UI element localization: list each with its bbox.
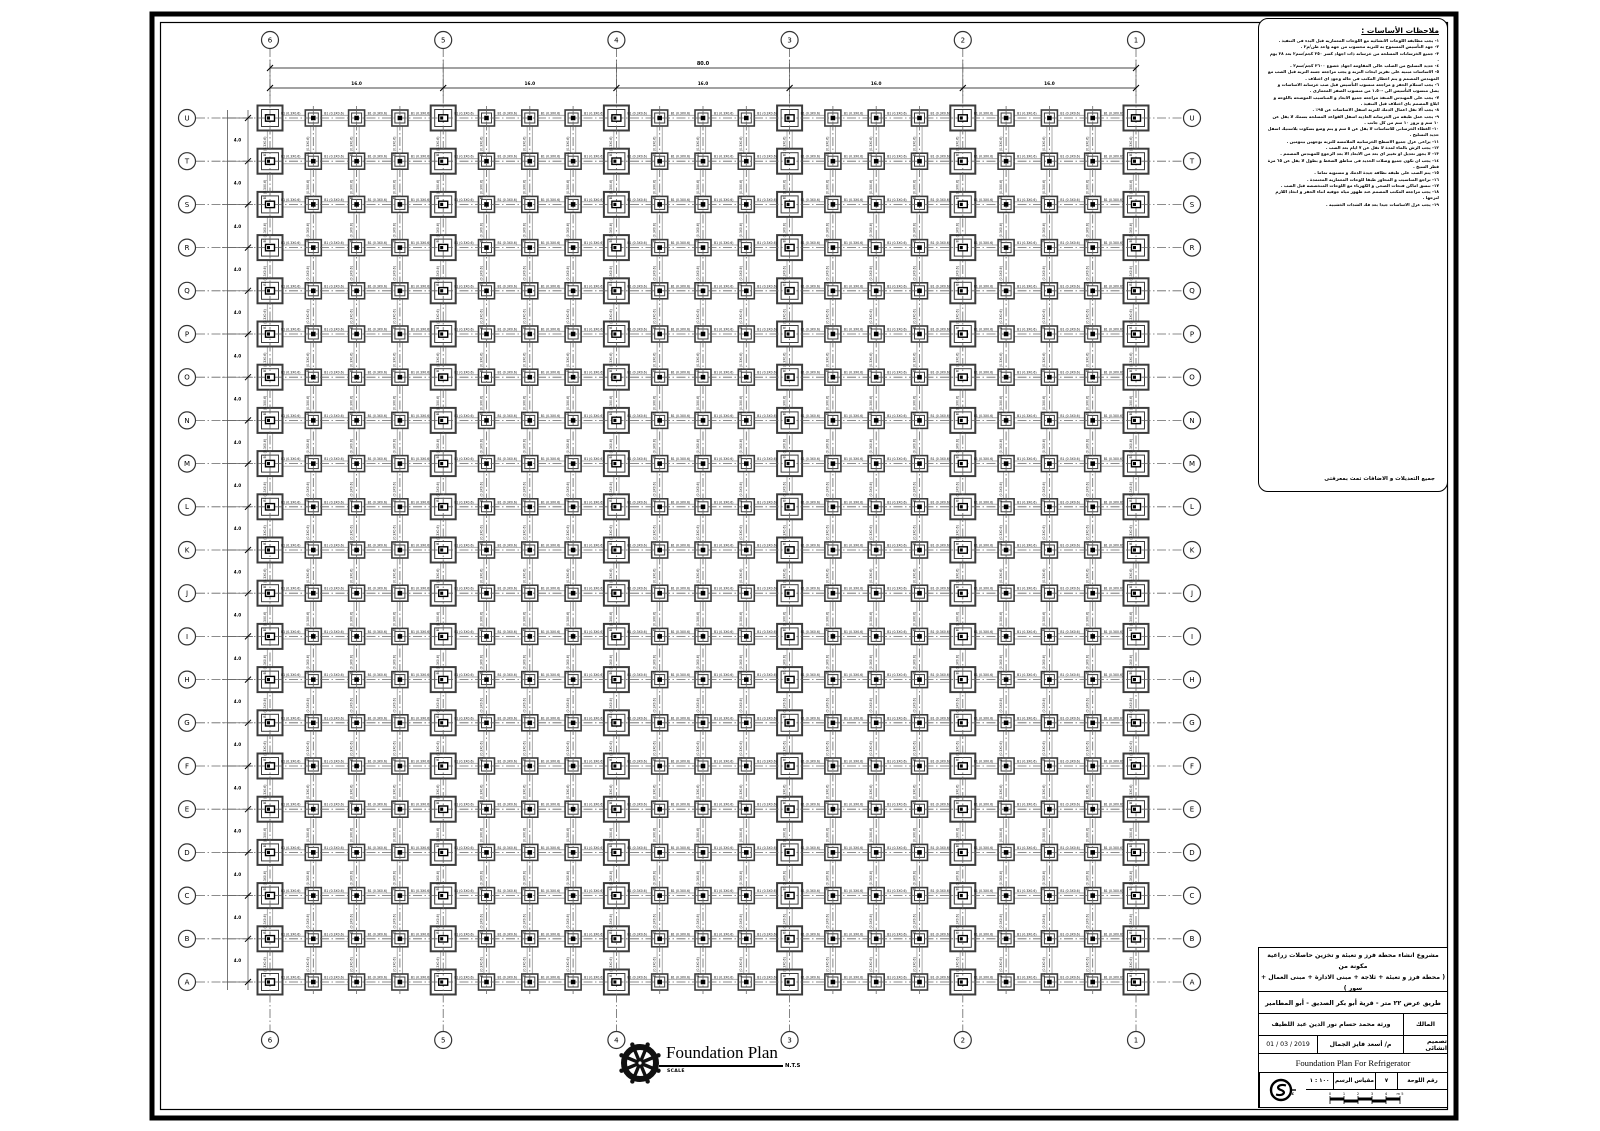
svg-text:B1 (0.3X0.6): B1 (0.3X0.6) <box>999 655 1003 674</box>
svg-text:B1 (0.3X0.6): B1 (0.3X0.6) <box>826 828 830 847</box>
svg-text:B1 (0.3X0.6): B1 (0.3X0.6) <box>324 889 343 893</box>
svg-text:B1 (0.3X0.6): B1 (0.3X0.6) <box>411 241 430 245</box>
svg-text:B1 (0.3X0.6): B1 (0.3X0.6) <box>1129 396 1133 415</box>
svg-text:B1 (0.3X0.6): B1 (0.3X0.6) <box>999 914 1003 933</box>
svg-text:B1 (0.3X0.6): B1 (0.3X0.6) <box>1042 871 1046 890</box>
svg-text:B1 (0.3X0.6): B1 (0.3X0.6) <box>1060 803 1079 807</box>
svg-text:B1 (0.3X0.6): B1 (0.3X0.6) <box>739 396 743 415</box>
svg-text:B1 (0.3X0.6): B1 (0.3X0.6) <box>306 741 310 760</box>
svg-text:B1 (0.3X0.6): B1 (0.3X0.6) <box>1104 112 1123 116</box>
svg-text:B1 (0.3X0.6): B1 (0.3X0.6) <box>782 871 786 890</box>
svg-text:B1 (0.3X0.6): B1 (0.3X0.6) <box>306 655 310 674</box>
svg-text:N: N <box>184 417 189 425</box>
svg-text:B1 (0.3X0.6): B1 (0.3X0.6) <box>974 846 993 850</box>
svg-text:B1 (0.3X0.6): B1 (0.3X0.6) <box>739 180 743 199</box>
svg-text:B1 (0.3X0.6): B1 (0.3X0.6) <box>324 976 343 980</box>
svg-text:B1 (0.3X0.6): B1 (0.3X0.6) <box>1042 655 1046 674</box>
svg-text:B1 (0.3X0.6): B1 (0.3X0.6) <box>1060 716 1079 720</box>
svg-text:R: R <box>185 244 190 252</box>
svg-text:B1 (0.3X0.6): B1 (0.3X0.6) <box>566 612 570 631</box>
svg-text:B1 (0.3X0.6): B1 (0.3X0.6) <box>411 587 430 591</box>
svg-text:2: 2 <box>961 36 965 44</box>
svg-text:B1 (0.3X0.6): B1 (0.3X0.6) <box>609 439 613 458</box>
svg-text:B1 (0.3X0.6): B1 (0.3X0.6) <box>782 266 786 285</box>
svg-text:B1 (0.3X0.6): B1 (0.3X0.6) <box>869 828 873 847</box>
svg-text:B1 (0.3X0.6): B1 (0.3X0.6) <box>454 155 473 159</box>
svg-text:B1 (0.3X0.6): B1 (0.3X0.6) <box>757 198 776 202</box>
svg-text:B1 (0.3X0.6): B1 (0.3X0.6) <box>956 655 960 674</box>
svg-text:B1 (0.3X0.6): B1 (0.3X0.6) <box>411 457 430 461</box>
svg-text:H: H <box>184 676 189 684</box>
svg-text:B1 (0.3X0.6): B1 (0.3X0.6) <box>1086 914 1090 933</box>
svg-text:B1 (0.3X0.6): B1 (0.3X0.6) <box>887 371 906 375</box>
svg-text:B1 (0.3X0.6): B1 (0.3X0.6) <box>627 284 646 288</box>
svg-text:B1 (0.3X0.6): B1 (0.3X0.6) <box>609 137 613 156</box>
svg-text:B1 (0.3X0.6): B1 (0.3X0.6) <box>393 785 397 804</box>
svg-text:B1 (0.3X0.6): B1 (0.3X0.6) <box>956 741 960 760</box>
svg-text:B1 (0.3X0.6): B1 (0.3X0.6) <box>653 396 657 415</box>
svg-text:B1 (0.3X0.6): B1 (0.3X0.6) <box>801 630 820 634</box>
svg-text:B1 (0.3X0.6): B1 (0.3X0.6) <box>436 266 440 285</box>
svg-text:B1 (0.3X0.6): B1 (0.3X0.6) <box>368 846 387 850</box>
svg-text:G: G <box>1189 719 1194 727</box>
svg-text:B1 (0.3X0.6): B1 (0.3X0.6) <box>498 932 517 936</box>
svg-text:B1 (0.3X0.6): B1 (0.3X0.6) <box>714 284 733 288</box>
svg-text:B1 (0.3X0.6): B1 (0.3X0.6) <box>1042 785 1046 804</box>
svg-text:B1 (0.3X0.6): B1 (0.3X0.6) <box>653 353 657 372</box>
designer-label: تصميم انشائى <box>1403 1036 1447 1053</box>
svg-text:B1 (0.3X0.6): B1 (0.3X0.6) <box>844 630 863 634</box>
svg-text:B1 (0.3X0.6): B1 (0.3X0.6) <box>263 871 267 890</box>
svg-text:S: S <box>185 201 190 209</box>
svg-text:B1 (0.3X0.6): B1 (0.3X0.6) <box>1017 155 1036 159</box>
svg-text:S: S <box>1190 201 1195 209</box>
svg-text:B1 (0.3X0.6): B1 (0.3X0.6) <box>411 284 430 288</box>
svg-text:B1 (0.3X0.6): B1 (0.3X0.6) <box>912 828 916 847</box>
svg-text:B1 (0.3X0.6): B1 (0.3X0.6) <box>627 328 646 332</box>
svg-text:B1 (0.3X0.6): B1 (0.3X0.6) <box>263 569 267 588</box>
svg-text:B1 (0.3X0.6): B1 (0.3X0.6) <box>739 439 743 458</box>
svg-text:B1 (0.3X0.6): B1 (0.3X0.6) <box>324 328 343 332</box>
svg-text:B1 (0.3X0.6): B1 (0.3X0.6) <box>869 266 873 285</box>
svg-text:B1 (0.3X0.6): B1 (0.3X0.6) <box>931 846 950 850</box>
svg-text:B1 (0.3X0.6): B1 (0.3X0.6) <box>1086 655 1090 674</box>
svg-text:B1 (0.3X0.6): B1 (0.3X0.6) <box>324 284 343 288</box>
svg-text:4.0: 4.0 <box>234 181 242 186</box>
svg-text:B1 (0.3X0.6): B1 (0.3X0.6) <box>368 760 387 764</box>
svg-text:B1 (0.3X0.6): B1 (0.3X0.6) <box>523 655 527 674</box>
svg-text:B1 (0.3X0.6): B1 (0.3X0.6) <box>1104 544 1123 548</box>
svg-text:B1 (0.3X0.6): B1 (0.3X0.6) <box>368 673 387 677</box>
title-block: مشروع انشاء محطة فرز و تعبئة و تخزين حاص… <box>1258 947 1448 1108</box>
svg-text:B1 (0.3X0.6): B1 (0.3X0.6) <box>826 785 830 804</box>
svg-text:B1 (0.3X0.6): B1 (0.3X0.6) <box>653 828 657 847</box>
svg-text:B1 (0.3X0.6): B1 (0.3X0.6) <box>801 457 820 461</box>
svg-text:B1 (0.3X0.6): B1 (0.3X0.6) <box>523 223 527 242</box>
notes-footer: جميع التعديلات و الاضافات تمت بمعرفتى <box>1324 476 1435 482</box>
svg-text:B1 (0.3X0.6): B1 (0.3X0.6) <box>844 457 863 461</box>
svg-text:B1 (0.3X0.6): B1 (0.3X0.6) <box>653 266 657 285</box>
svg-text:B1 (0.3X0.6): B1 (0.3X0.6) <box>671 760 690 764</box>
svg-text:B1 (0.3X0.6): B1 (0.3X0.6) <box>281 198 300 202</box>
svg-text:B1 (0.3X0.6): B1 (0.3X0.6) <box>714 544 733 548</box>
svg-text:B1 (0.3X0.6): B1 (0.3X0.6) <box>1060 328 1079 332</box>
svg-text:B1 (0.3X0.6): B1 (0.3X0.6) <box>368 284 387 288</box>
svg-text:B1 (0.3X0.6): B1 (0.3X0.6) <box>844 889 863 893</box>
svg-text:B1 (0.3X0.6): B1 (0.3X0.6) <box>627 198 646 202</box>
svg-text:J: J <box>1190 590 1193 598</box>
note-line: ٩- يجب عمل طبقة من الخرسانة العادية اسفل… <box>1267 114 1439 127</box>
svg-text:4.0: 4.0 <box>234 829 242 834</box>
svg-text:B1 (0.3X0.6): B1 (0.3X0.6) <box>436 180 440 199</box>
svg-text:B1 (0.3X0.6): B1 (0.3X0.6) <box>523 569 527 588</box>
svg-text:B1 (0.3X0.6): B1 (0.3X0.6) <box>1017 673 1036 677</box>
scale-caption-label: SCALE <box>667 1069 685 1074</box>
svg-text:B1 (0.3X0.6): B1 (0.3X0.6) <box>349 698 353 717</box>
svg-text:B1 (0.3X0.6): B1 (0.3X0.6) <box>566 180 570 199</box>
svg-text:B1 (0.3X0.6): B1 (0.3X0.6) <box>609 655 613 674</box>
svg-text:B1 (0.3X0.6): B1 (0.3X0.6) <box>368 241 387 245</box>
svg-text:B1 (0.3X0.6): B1 (0.3X0.6) <box>393 353 397 372</box>
svg-text:B1 (0.3X0.6): B1 (0.3X0.6) <box>1060 112 1079 116</box>
svg-text:B1 (0.3X0.6): B1 (0.3X0.6) <box>498 414 517 418</box>
svg-text:B1 (0.3X0.6): B1 (0.3X0.6) <box>999 698 1003 717</box>
svg-text:B1 (0.3X0.6): B1 (0.3X0.6) <box>844 932 863 936</box>
svg-text:B1 (0.3X0.6): B1 (0.3X0.6) <box>887 760 906 764</box>
svg-text:B1 (0.3X0.6): B1 (0.3X0.6) <box>739 569 743 588</box>
svg-text:B1 (0.3X0.6): B1 (0.3X0.6) <box>479 309 483 328</box>
svg-text:B1 (0.3X0.6): B1 (0.3X0.6) <box>714 241 733 245</box>
svg-text:B1 (0.3X0.6): B1 (0.3X0.6) <box>584 673 603 677</box>
svg-text:B1 (0.3X0.6): B1 (0.3X0.6) <box>609 698 613 717</box>
svg-text:B1 (0.3X0.6): B1 (0.3X0.6) <box>1086 180 1090 199</box>
svg-text:I: I <box>1191 633 1193 641</box>
svg-text:B1 (0.3X0.6): B1 (0.3X0.6) <box>523 396 527 415</box>
svg-text:B1 (0.3X0.6): B1 (0.3X0.6) <box>801 198 820 202</box>
svg-text:B1 (0.3X0.6): B1 (0.3X0.6) <box>393 612 397 631</box>
svg-text:B1 (0.3X0.6): B1 (0.3X0.6) <box>306 309 310 328</box>
svg-text:B1 (0.3X0.6): B1 (0.3X0.6) <box>498 500 517 504</box>
svg-text:B1 (0.3X0.6): B1 (0.3X0.6) <box>1060 155 1079 159</box>
svg-text:B1 (0.3X0.6): B1 (0.3X0.6) <box>844 241 863 245</box>
svg-text:B1 (0.3X0.6): B1 (0.3X0.6) <box>1129 785 1133 804</box>
svg-text:B1 (0.3X0.6): B1 (0.3X0.6) <box>411 112 430 116</box>
svg-text:B1 (0.3X0.6): B1 (0.3X0.6) <box>393 525 397 544</box>
svg-text:B1 (0.3X0.6): B1 (0.3X0.6) <box>826 871 830 890</box>
svg-text:B1 (0.3X0.6): B1 (0.3X0.6) <box>869 612 873 631</box>
svg-text:B1 (0.3X0.6): B1 (0.3X0.6) <box>609 223 613 242</box>
svg-text:B1 (0.3X0.6): B1 (0.3X0.6) <box>739 266 743 285</box>
svg-text:B1 (0.3X0.6): B1 (0.3X0.6) <box>1017 112 1036 116</box>
svg-text:B1 (0.3X0.6): B1 (0.3X0.6) <box>757 889 776 893</box>
svg-text:B1 (0.3X0.6): B1 (0.3X0.6) <box>739 309 743 328</box>
svg-text:B1 (0.3X0.6): B1 (0.3X0.6) <box>324 932 343 936</box>
svg-text:B1 (0.3X0.6): B1 (0.3X0.6) <box>349 482 353 501</box>
svg-text:B1 (0.3X0.6): B1 (0.3X0.6) <box>826 612 830 631</box>
svg-text:B1 (0.3X0.6): B1 (0.3X0.6) <box>671 976 690 980</box>
svg-text:B1 (0.3X0.6): B1 (0.3X0.6) <box>887 803 906 807</box>
svg-text:B1 (0.3X0.6): B1 (0.3X0.6) <box>1104 716 1123 720</box>
svg-text:B1 (0.3X0.6): B1 (0.3X0.6) <box>653 957 657 976</box>
svg-text:K: K <box>1190 546 1195 554</box>
svg-text:B1 (0.3X0.6): B1 (0.3X0.6) <box>671 328 690 332</box>
svg-text:B1 (0.3X0.6): B1 (0.3X0.6) <box>757 630 776 634</box>
svg-text:B1 (0.3X0.6): B1 (0.3X0.6) <box>263 828 267 847</box>
svg-text:B1 (0.3X0.6): B1 (0.3X0.6) <box>281 328 300 332</box>
svg-text:B1 (0.3X0.6): B1 (0.3X0.6) <box>757 328 776 332</box>
svg-text:B1 (0.3X0.6): B1 (0.3X0.6) <box>306 828 310 847</box>
svg-text:B1 (0.3X0.6): B1 (0.3X0.6) <box>653 180 657 199</box>
sheet-info-cells: رقم اللوحة ٧ مقياس الرسم ١٠٠ : ١ <box>1306 1073 1447 1090</box>
svg-text:B1 (0.3X0.6): B1 (0.3X0.6) <box>1017 241 1036 245</box>
svg-text:B1 (0.3X0.6): B1 (0.3X0.6) <box>523 914 527 933</box>
svg-text:B1 (0.3X0.6): B1 (0.3X0.6) <box>436 353 440 372</box>
svg-text:B1 (0.3X0.6): B1 (0.3X0.6) <box>393 957 397 976</box>
svg-text:B1 (0.3X0.6): B1 (0.3X0.6) <box>609 828 613 847</box>
svg-text:B1 (0.3X0.6): B1 (0.3X0.6) <box>931 241 950 245</box>
svg-text:B1 (0.3X0.6): B1 (0.3X0.6) <box>714 112 733 116</box>
svg-text:B1 (0.3X0.6): B1 (0.3X0.6) <box>1104 198 1123 202</box>
svg-text:B1 (0.3X0.6): B1 (0.3X0.6) <box>869 525 873 544</box>
svg-text:B1 (0.3X0.6): B1 (0.3X0.6) <box>696 266 700 285</box>
svg-text:B1 (0.3X0.6): B1 (0.3X0.6) <box>869 482 873 501</box>
svg-text:B1 (0.3X0.6): B1 (0.3X0.6) <box>479 828 483 847</box>
svg-text:B1 (0.3X0.6): B1 (0.3X0.6) <box>393 914 397 933</box>
svg-text:B1 (0.3X0.6): B1 (0.3X0.6) <box>782 569 786 588</box>
svg-text:B1 (0.3X0.6): B1 (0.3X0.6) <box>1086 439 1090 458</box>
svg-text:B1 (0.3X0.6): B1 (0.3X0.6) <box>1042 309 1046 328</box>
svg-text:B1 (0.3X0.6): B1 (0.3X0.6) <box>541 716 560 720</box>
svg-text:B1 (0.3X0.6): B1 (0.3X0.6) <box>826 266 830 285</box>
svg-text:B1 (0.3X0.6): B1 (0.3X0.6) <box>1129 266 1133 285</box>
svg-text:B1 (0.3X0.6): B1 (0.3X0.6) <box>1104 414 1123 418</box>
svg-text:B1 (0.3X0.6): B1 (0.3X0.6) <box>523 698 527 717</box>
svg-text:B1 (0.3X0.6): B1 (0.3X0.6) <box>1086 569 1090 588</box>
svg-text:B1 (0.3X0.6): B1 (0.3X0.6) <box>826 137 830 156</box>
svg-text:B1 (0.3X0.6): B1 (0.3X0.6) <box>1129 957 1133 976</box>
owner-label: المالك <box>1403 1014 1447 1035</box>
svg-text:B1 (0.3X0.6): B1 (0.3X0.6) <box>912 698 916 717</box>
svg-text:B1 (0.3X0.6): B1 (0.3X0.6) <box>566 309 570 328</box>
svg-text:B1 (0.3X0.6): B1 (0.3X0.6) <box>541 803 560 807</box>
svg-text:B1 (0.3X0.6): B1 (0.3X0.6) <box>801 544 820 548</box>
svg-text:B1 (0.3X0.6): B1 (0.3X0.6) <box>999 785 1003 804</box>
notes-title: ملاحظات الأساسات : <box>1267 26 1439 35</box>
svg-text:B1 (0.3X0.6): B1 (0.3X0.6) <box>869 785 873 804</box>
svg-text:B1 (0.3X0.6): B1 (0.3X0.6) <box>498 673 517 677</box>
svg-text:B1 (0.3X0.6): B1 (0.3X0.6) <box>671 371 690 375</box>
svg-text:B1 (0.3X0.6): B1 (0.3X0.6) <box>956 698 960 717</box>
svg-text:4.0: 4.0 <box>234 699 242 704</box>
svg-text:B1 (0.3X0.6): B1 (0.3X0.6) <box>306 871 310 890</box>
svg-text:B1 (0.3X0.6): B1 (0.3X0.6) <box>281 846 300 850</box>
svg-text:B1 (0.3X0.6): B1 (0.3X0.6) <box>609 957 613 976</box>
svg-text:B1 (0.3X0.6): B1 (0.3X0.6) <box>887 112 906 116</box>
drawing-scale-label: مقياس الرسم <box>1333 1073 1375 1089</box>
svg-text:B1 (0.3X0.6): B1 (0.3X0.6) <box>349 655 353 674</box>
svg-text:B1 (0.3X0.6): B1 (0.3X0.6) <box>671 284 690 288</box>
svg-text:4.0: 4.0 <box>234 958 242 963</box>
svg-text:B1 (0.3X0.6): B1 (0.3X0.6) <box>887 932 906 936</box>
svg-text:B1 (0.3X0.6): B1 (0.3X0.6) <box>324 457 343 461</box>
svg-text:B1 (0.3X0.6): B1 (0.3X0.6) <box>696 828 700 847</box>
svg-text:B1 (0.3X0.6): B1 (0.3X0.6) <box>696 871 700 890</box>
svg-text:B1 (0.3X0.6): B1 (0.3X0.6) <box>1017 760 1036 764</box>
svg-text:B1 (0.3X0.6): B1 (0.3X0.6) <box>696 612 700 631</box>
svg-text:B1 (0.3X0.6): B1 (0.3X0.6) <box>1017 932 1036 936</box>
svg-text:B1 (0.3X0.6): B1 (0.3X0.6) <box>844 155 863 159</box>
svg-text:B1 (0.3X0.6): B1 (0.3X0.6) <box>844 760 863 764</box>
svg-text:B1 (0.3X0.6): B1 (0.3X0.6) <box>324 846 343 850</box>
svg-text:B1 (0.3X0.6): B1 (0.3X0.6) <box>1104 500 1123 504</box>
svg-text:B1 (0.3X0.6): B1 (0.3X0.6) <box>324 760 343 764</box>
svg-text:B1 (0.3X0.6): B1 (0.3X0.6) <box>566 914 570 933</box>
svg-text:B1 (0.3X0.6): B1 (0.3X0.6) <box>739 223 743 242</box>
drawing-title-en: Foundation Plan For Refrigerator <box>1259 1054 1447 1073</box>
svg-text:B1 (0.3X0.6): B1 (0.3X0.6) <box>912 612 916 631</box>
svg-text:B1 (0.3X0.6): B1 (0.3X0.6) <box>609 914 613 933</box>
svg-text:B1 (0.3X0.6): B1 (0.3X0.6) <box>479 439 483 458</box>
svg-text:B1 (0.3X0.6): B1 (0.3X0.6) <box>306 353 310 372</box>
svg-text:B1 (0.3X0.6): B1 (0.3X0.6) <box>974 630 993 634</box>
svg-text:B1 (0.3X0.6): B1 (0.3X0.6) <box>999 828 1003 847</box>
svg-text:B1 (0.3X0.6): B1 (0.3X0.6) <box>739 612 743 631</box>
svg-text:B1 (0.3X0.6): B1 (0.3X0.6) <box>324 371 343 375</box>
svg-text:B1 (0.3X0.6): B1 (0.3X0.6) <box>1104 328 1123 332</box>
svg-text:B1 (0.3X0.6): B1 (0.3X0.6) <box>627 630 646 634</box>
svg-text:B1 (0.3X0.6): B1 (0.3X0.6) <box>281 803 300 807</box>
svg-text:B1 (0.3X0.6): B1 (0.3X0.6) <box>974 155 993 159</box>
svg-text:B1 (0.3X0.6): B1 (0.3X0.6) <box>584 587 603 591</box>
svg-text:B1 (0.3X0.6): B1 (0.3X0.6) <box>541 328 560 332</box>
svg-text:0: 0 <box>1328 1092 1331 1096</box>
svg-text:B1 (0.3X0.6): B1 (0.3X0.6) <box>306 439 310 458</box>
svg-text:B1 (0.3X0.6): B1 (0.3X0.6) <box>541 414 560 418</box>
svg-text:B1 (0.3X0.6): B1 (0.3X0.6) <box>1042 439 1046 458</box>
svg-text:B1 (0.3X0.6): B1 (0.3X0.6) <box>801 846 820 850</box>
svg-text:B1 (0.3X0.6): B1 (0.3X0.6) <box>801 284 820 288</box>
svg-text:B1 (0.3X0.6): B1 (0.3X0.6) <box>411 716 430 720</box>
svg-text:B1 (0.3X0.6): B1 (0.3X0.6) <box>454 760 473 764</box>
svg-text:B1 (0.3X0.6): B1 (0.3X0.6) <box>956 180 960 199</box>
svg-text:B1 (0.3X0.6): B1 (0.3X0.6) <box>566 871 570 890</box>
svg-text:B1 (0.3X0.6): B1 (0.3X0.6) <box>887 587 906 591</box>
svg-text:B1 (0.3X0.6): B1 (0.3X0.6) <box>974 544 993 548</box>
svg-text:B1 (0.3X0.6): B1 (0.3X0.6) <box>887 544 906 548</box>
svg-text:B1 (0.3X0.6): B1 (0.3X0.6) <box>324 112 343 116</box>
svg-text:B1 (0.3X0.6): B1 (0.3X0.6) <box>281 155 300 159</box>
svg-text:B1 (0.3X0.6): B1 (0.3X0.6) <box>1060 371 1079 375</box>
svg-text:B1 (0.3X0.6): B1 (0.3X0.6) <box>541 198 560 202</box>
svg-text:B1 (0.3X0.6): B1 (0.3X0.6) <box>887 630 906 634</box>
svg-text:B1 (0.3X0.6): B1 (0.3X0.6) <box>653 569 657 588</box>
svg-text:B1 (0.3X0.6): B1 (0.3X0.6) <box>436 396 440 415</box>
svg-text:B1 (0.3X0.6): B1 (0.3X0.6) <box>671 889 690 893</box>
svg-text:B1 (0.3X0.6): B1 (0.3X0.6) <box>956 612 960 631</box>
svg-text:B1 (0.3X0.6): B1 (0.3X0.6) <box>931 414 950 418</box>
svg-text:B1 (0.3X0.6): B1 (0.3X0.6) <box>714 500 733 504</box>
svg-text:B1 (0.3X0.6): B1 (0.3X0.6) <box>696 439 700 458</box>
svg-text:B1 (0.3X0.6): B1 (0.3X0.6) <box>436 223 440 242</box>
project-location: طريق عرض ٢٢ متر - قرية أبو بكر الصديق - … <box>1259 992 1447 1014</box>
svg-text:B1 (0.3X0.6): B1 (0.3X0.6) <box>436 137 440 156</box>
svg-text:B1 (0.3X0.6): B1 (0.3X0.6) <box>869 439 873 458</box>
svg-text:B1 (0.3X0.6): B1 (0.3X0.6) <box>498 241 517 245</box>
svg-text:B1 (0.3X0.6): B1 (0.3X0.6) <box>887 457 906 461</box>
svg-text:B1 (0.3X0.6): B1 (0.3X0.6) <box>566 525 570 544</box>
svg-text:B1 (0.3X0.6): B1 (0.3X0.6) <box>931 976 950 980</box>
svg-text:B1 (0.3X0.6): B1 (0.3X0.6) <box>739 137 743 156</box>
svg-text:B1 (0.3X0.6): B1 (0.3X0.6) <box>1104 673 1123 677</box>
svg-text:B1 (0.3X0.6): B1 (0.3X0.6) <box>826 525 830 544</box>
svg-text:B1 (0.3X0.6): B1 (0.3X0.6) <box>1060 587 1079 591</box>
svg-text:4.0: 4.0 <box>234 483 242 488</box>
drawing-scale-value: ١٠٠ : ١ <box>1306 1073 1333 1089</box>
svg-text:B1 (0.3X0.6): B1 (0.3X0.6) <box>887 976 906 980</box>
svg-text:B1 (0.3X0.6): B1 (0.3X0.6) <box>393 439 397 458</box>
svg-text:B1 (0.3X0.6): B1 (0.3X0.6) <box>912 785 916 804</box>
svg-text:B1 (0.3X0.6): B1 (0.3X0.6) <box>1129 569 1133 588</box>
svg-text:B1 (0.3X0.6): B1 (0.3X0.6) <box>739 525 743 544</box>
svg-text:O: O <box>184 374 190 382</box>
svg-text:B1 (0.3X0.6): B1 (0.3X0.6) <box>1042 180 1046 199</box>
svg-text:B1 (0.3X0.6): B1 (0.3X0.6) <box>1129 353 1133 372</box>
svg-text:B1 (0.3X0.6): B1 (0.3X0.6) <box>1060 760 1079 764</box>
svg-text:B1 (0.3X0.6): B1 (0.3X0.6) <box>479 525 483 544</box>
svg-text:B1 (0.3X0.6): B1 (0.3X0.6) <box>393 309 397 328</box>
svg-text:B1 (0.3X0.6): B1 (0.3X0.6) <box>498 716 517 720</box>
svg-text:B1 (0.3X0.6): B1 (0.3X0.6) <box>411 760 430 764</box>
svg-text:B1 (0.3X0.6): B1 (0.3X0.6) <box>541 544 560 548</box>
svg-text:U: U <box>184 114 189 122</box>
svg-text:B1 (0.3X0.6): B1 (0.3X0.6) <box>757 500 776 504</box>
svg-text:B1 (0.3X0.6): B1 (0.3X0.6) <box>912 525 916 544</box>
svg-text:B1 (0.3X0.6): B1 (0.3X0.6) <box>411 630 430 634</box>
svg-text:B1 (0.3X0.6): B1 (0.3X0.6) <box>714 760 733 764</box>
svg-text:B1 (0.3X0.6): B1 (0.3X0.6) <box>801 976 820 980</box>
svg-text:B: B <box>1190 935 1195 943</box>
svg-text:B1 (0.3X0.6): B1 (0.3X0.6) <box>1060 889 1079 893</box>
svg-text:16.0: 16.0 <box>524 81 535 87</box>
svg-text:B1 (0.3X0.6): B1 (0.3X0.6) <box>349 569 353 588</box>
svg-text:B1 (0.3X0.6): B1 (0.3X0.6) <box>826 439 830 458</box>
svg-text:B1 (0.3X0.6): B1 (0.3X0.6) <box>653 309 657 328</box>
svg-text:B1 (0.3X0.6): B1 (0.3X0.6) <box>714 630 733 634</box>
svg-text:B1 (0.3X0.6): B1 (0.3X0.6) <box>584 716 603 720</box>
svg-text:B1 (0.3X0.6): B1 (0.3X0.6) <box>1042 266 1046 285</box>
svg-text:B1 (0.3X0.6): B1 (0.3X0.6) <box>306 914 310 933</box>
svg-text:B1 (0.3X0.6): B1 (0.3X0.6) <box>931 198 950 202</box>
svg-text:B1 (0.3X0.6): B1 (0.3X0.6) <box>349 396 353 415</box>
svg-text:B1 (0.3X0.6): B1 (0.3X0.6) <box>523 266 527 285</box>
svg-text:B1 (0.3X0.6): B1 (0.3X0.6) <box>523 180 527 199</box>
svg-text:B1 (0.3X0.6): B1 (0.3X0.6) <box>454 500 473 504</box>
svg-text:B1 (0.3X0.6): B1 (0.3X0.6) <box>306 223 310 242</box>
svg-text:B1 (0.3X0.6): B1 (0.3X0.6) <box>436 612 440 631</box>
svg-text:B1 (0.3X0.6): B1 (0.3X0.6) <box>999 569 1003 588</box>
svg-text:B1 (0.3X0.6): B1 (0.3X0.6) <box>454 284 473 288</box>
svg-text:B1 (0.3X0.6): B1 (0.3X0.6) <box>609 353 613 372</box>
svg-text:P: P <box>1190 330 1194 338</box>
svg-text:B1 (0.3X0.6): B1 (0.3X0.6) <box>757 846 776 850</box>
svg-text:G: G <box>184 719 189 727</box>
svg-text:B1 (0.3X0.6): B1 (0.3X0.6) <box>541 976 560 980</box>
svg-text:B1 (0.3X0.6): B1 (0.3X0.6) <box>757 371 776 375</box>
svg-text:B1 (0.3X0.6): B1 (0.3X0.6) <box>498 284 517 288</box>
svg-text:B1 (0.3X0.6): B1 (0.3X0.6) <box>411 846 430 850</box>
svg-text:B1 (0.3X0.6): B1 (0.3X0.6) <box>281 587 300 591</box>
designer-value: م/ أسعد فايز الجمال <box>1317 1036 1403 1053</box>
